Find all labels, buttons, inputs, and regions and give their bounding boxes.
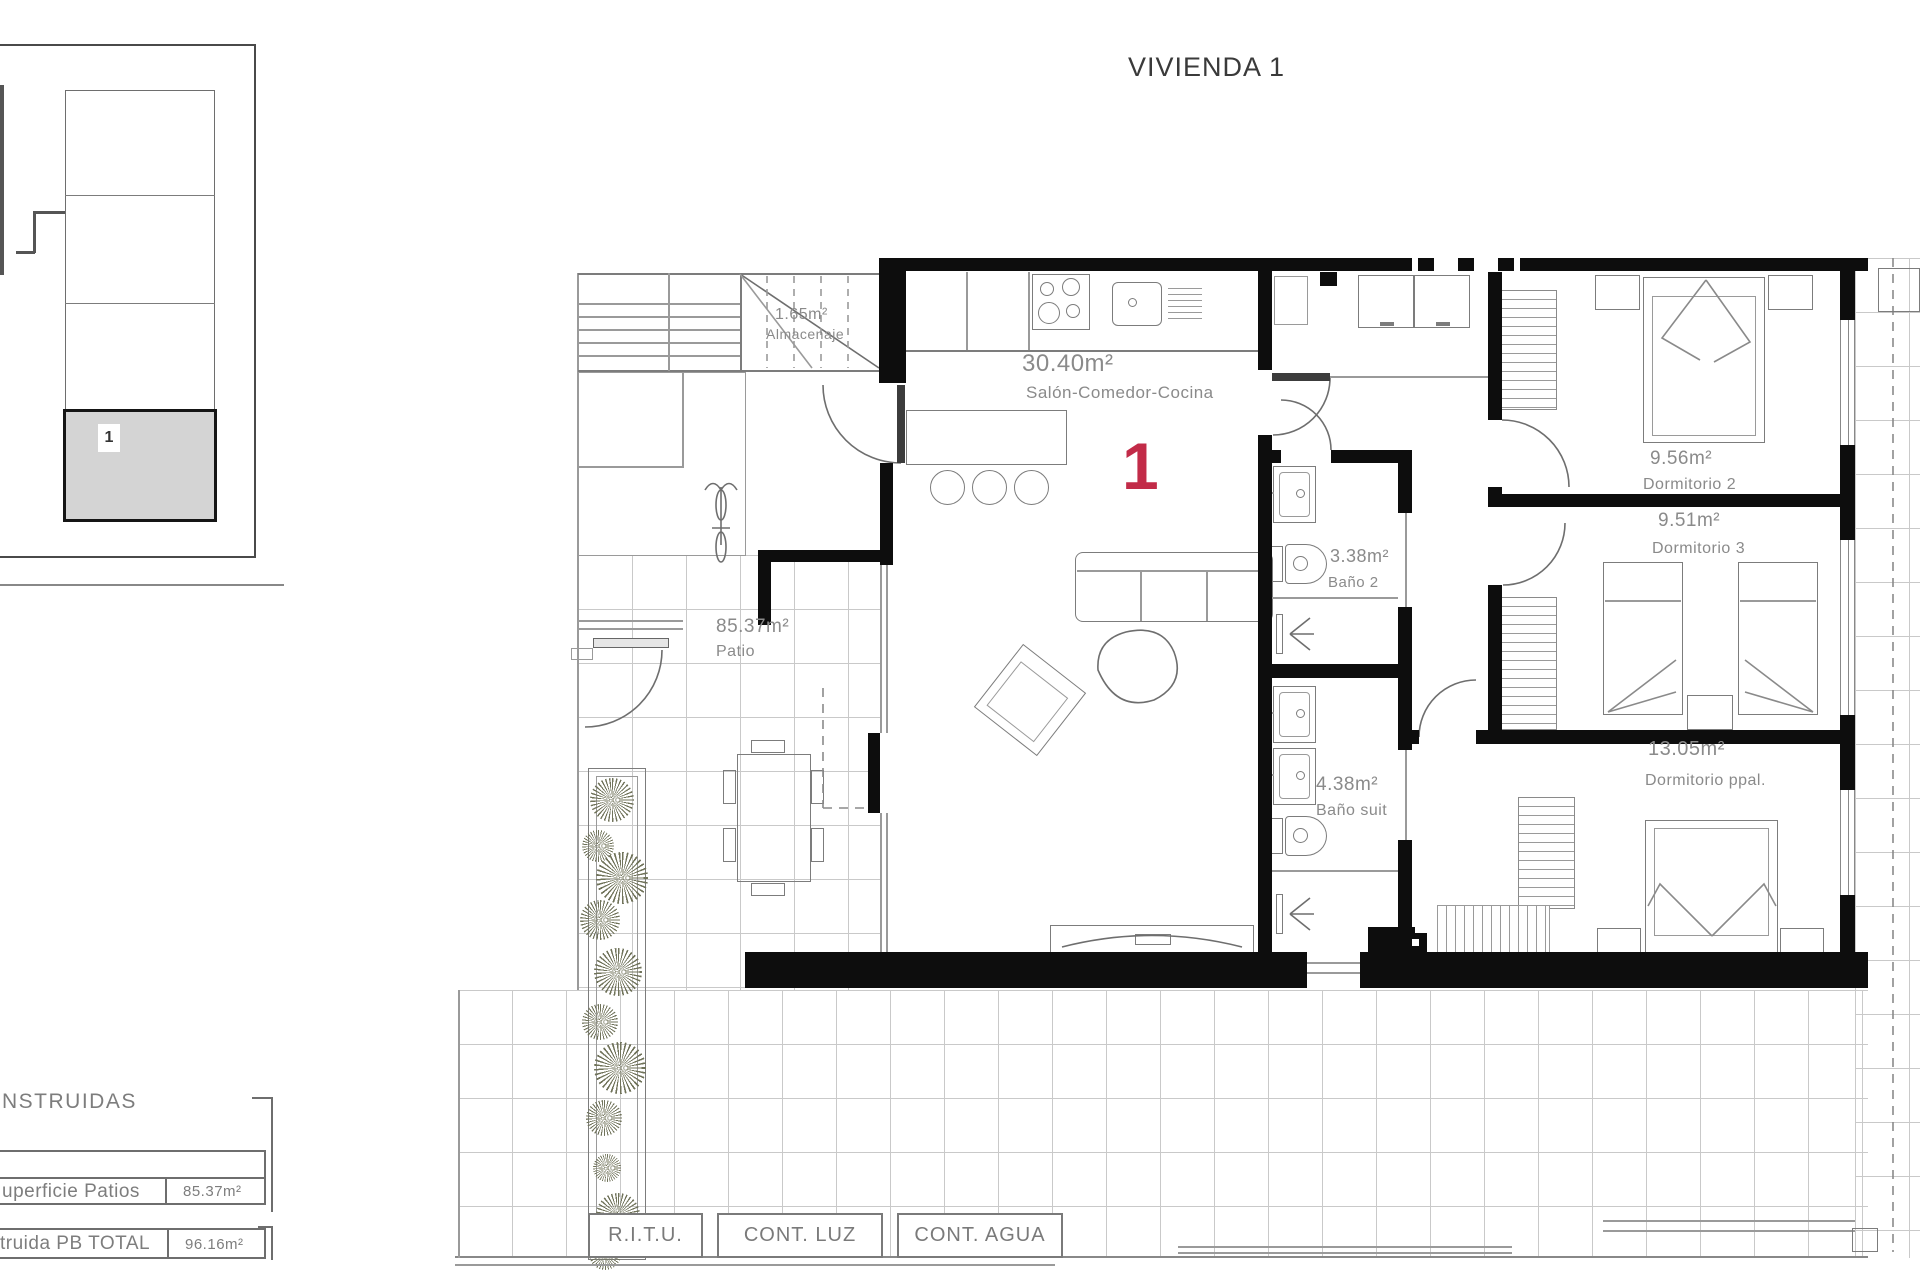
wall — [1412, 730, 1419, 744]
wall — [1272, 450, 1281, 463]
door-opening — [1307, 952, 1360, 988]
mullion — [1498, 258, 1514, 271]
wall — [1840, 715, 1855, 790]
wall — [1258, 258, 1272, 370]
ground-line — [455, 1264, 1055, 1266]
unit-number: 1 — [1122, 428, 1159, 504]
wall — [1398, 607, 1412, 750]
mullion — [1418, 258, 1434, 271]
window-glass-line — [1848, 540, 1850, 715]
wall — [879, 258, 1868, 271]
room-name: Baño suit — [1316, 802, 1387, 820]
utility-box-ritu: R.I.T.U. — [588, 1213, 703, 1258]
track-line — [1178, 1252, 1512, 1254]
window-mullion-band — [1412, 258, 1520, 271]
gate-line — [1603, 1220, 1855, 1222]
room-name: Dormitorio ppal. — [1645, 772, 1766, 790]
coffee-table — [1098, 630, 1177, 702]
wall-pillar — [1320, 272, 1337, 286]
glass-door — [880, 813, 882, 952]
door-arc — [1273, 378, 1330, 435]
room-name: Almacenaje — [766, 326, 844, 342]
wall — [1840, 895, 1855, 988]
window — [1840, 790, 1855, 895]
room-area: 13.05m² — [1648, 738, 1725, 761]
wall — [1840, 258, 1855, 320]
wall — [879, 258, 906, 362]
window — [1840, 320, 1855, 445]
glass-door — [880, 565, 882, 733]
room-area: 30.40m² — [1022, 350, 1114, 378]
wall — [1488, 272, 1502, 420]
floor-plan-sheet: VIVIENDA 1 1 NSTRUIDAS uperficie Patios … — [0, 0, 1920, 1280]
room-name: Salón-Comedor-Cocina — [1026, 383, 1214, 403]
room-name: Dormitorio 2 — [1643, 476, 1736, 494]
room-area: 4.38m² — [1316, 774, 1378, 796]
bicycle-icon — [705, 484, 737, 563]
door-leaf — [1272, 373, 1330, 381]
room-area: 3.38m² — [1330, 546, 1389, 567]
room-area: 9.51m² — [1658, 510, 1720, 532]
room-area: 85.37m² — [716, 616, 789, 638]
wall — [1840, 445, 1855, 540]
wall — [1258, 664, 1412, 678]
window-glass-line — [1848, 320, 1850, 445]
glass-door — [886, 565, 888, 733]
door-arc — [823, 385, 901, 463]
door-leaf — [897, 385, 905, 463]
plan-linework — [0, 0, 1920, 1280]
window-glass-line — [1848, 790, 1850, 895]
wall — [880, 463, 893, 565]
room-name: Baño 2 — [1328, 574, 1379, 591]
tv-curve — [1062, 936, 1242, 948]
wall — [758, 550, 880, 562]
room-area: 1.65m² — [775, 306, 828, 324]
door-arc — [1503, 523, 1565, 585]
gate-post — [1852, 1228, 1878, 1252]
wall-pier — [868, 733, 880, 813]
wall — [1398, 840, 1412, 927]
ac-unit — [1878, 268, 1920, 312]
wall — [1488, 585, 1502, 730]
room-area: 9.56m² — [1650, 448, 1712, 470]
glass-door — [886, 813, 888, 952]
utility-box-cont-agua: CONT. AGUA — [897, 1213, 1063, 1258]
door-arc — [585, 650, 662, 727]
track-line — [1178, 1246, 1512, 1248]
column-marker — [1405, 933, 1427, 952]
gate-line — [1603, 1230, 1855, 1232]
terrace-edge — [458, 990, 460, 1258]
wall — [879, 362, 906, 383]
wall — [1488, 494, 1840, 507]
door-arc — [1419, 680, 1476, 737]
door-arc — [1502, 420, 1569, 487]
window — [1840, 540, 1855, 715]
wall — [758, 550, 771, 625]
room-name: Dormitorio 3 — [1652, 540, 1745, 558]
column-core — [1412, 939, 1419, 946]
room-name: Patio — [716, 643, 755, 661]
wall — [1398, 451, 1412, 513]
wall — [1258, 435, 1272, 952]
threshold-line — [1307, 962, 1360, 964]
mullion — [1458, 258, 1474, 271]
bed-fold-lines — [1608, 280, 1813, 936]
threshold-line — [1307, 972, 1360, 974]
utility-box-cont-luz: CONT. LUZ — [717, 1213, 883, 1258]
